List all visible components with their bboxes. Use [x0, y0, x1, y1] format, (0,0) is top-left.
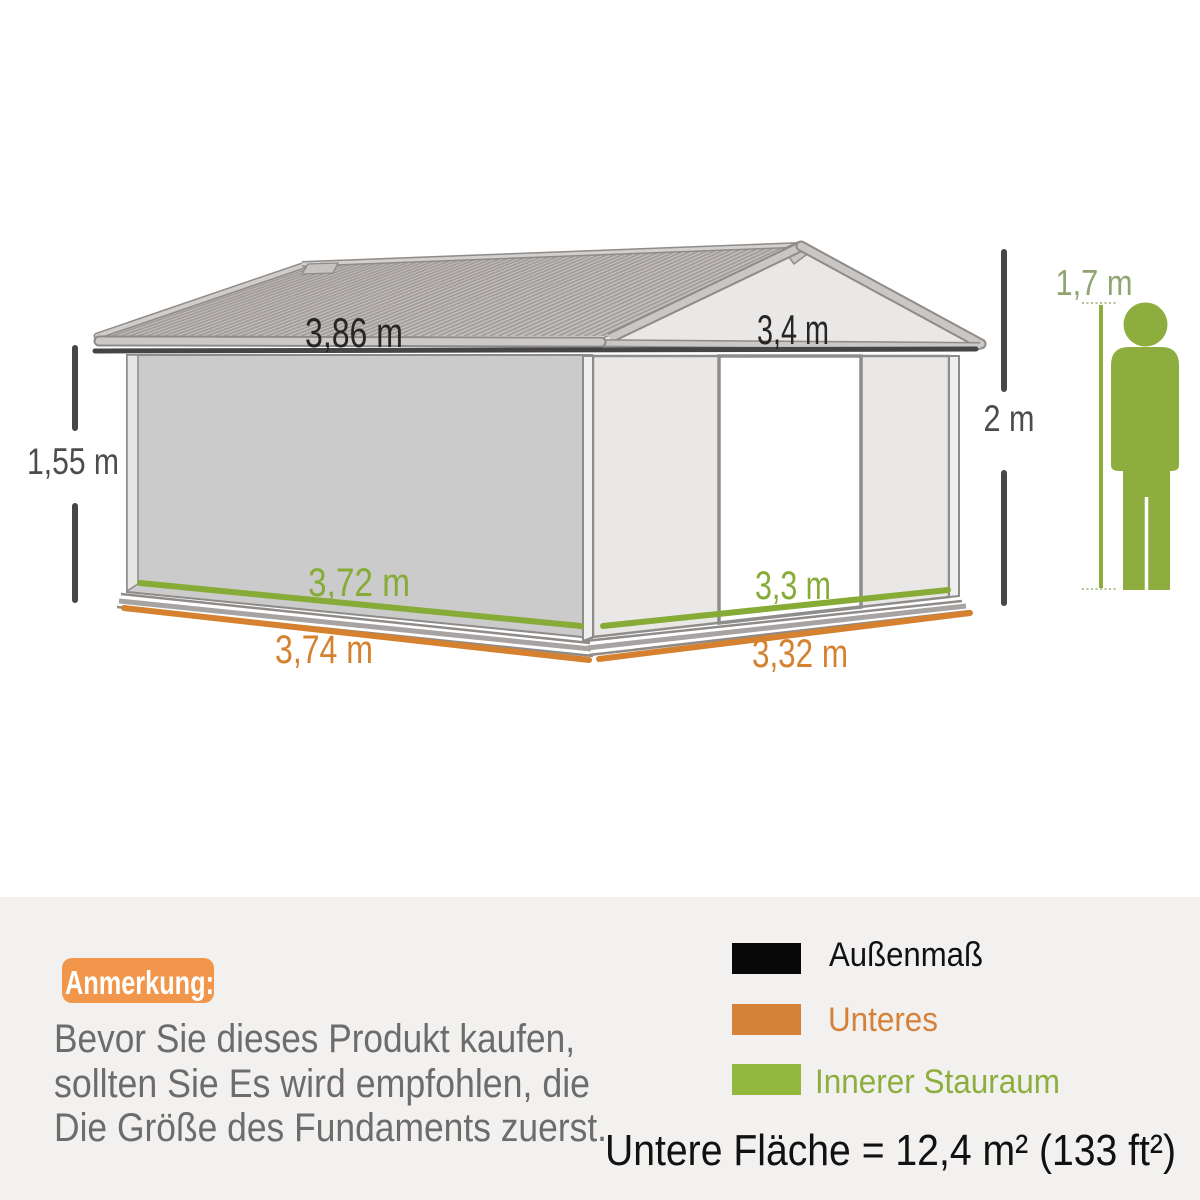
svg-text:sollten Sie Es wird empfohlen,: sollten Sie Es wird empfohlen, die: [54, 1062, 590, 1106]
svg-text:3,72 m: 3,72 m: [308, 561, 410, 605]
svg-text:3,3 m: 3,3 m: [755, 564, 831, 608]
svg-text:2 m: 2 m: [984, 398, 1035, 439]
svg-text:3,32 m: 3,32 m: [752, 632, 848, 676]
svg-text:Bevor Sie dieses Produkt kaufe: Bevor Sie dieses Produkt kaufen,: [54, 1017, 575, 1061]
svg-text:Anmerkung:: Anmerkung:: [65, 964, 214, 1001]
svg-text:3,4 m: 3,4 m: [757, 306, 829, 353]
svg-text:Untere Fläche = 12,4 m² (133 f: Untere Fläche = 12,4 m² (133 ft²): [605, 1126, 1176, 1175]
svg-text:Außenmaß: Außenmaß: [829, 936, 983, 974]
svg-text:Unteres: Unteres: [828, 1001, 938, 1039]
svg-text:3,86 m: 3,86 m: [305, 309, 403, 356]
svg-text:Die Größe des Fundaments zuers: Die Größe des Fundaments zuerst.: [54, 1106, 607, 1150]
svg-text:1,7 m: 1,7 m: [1056, 262, 1133, 303]
svg-text:Innerer Stauraum: Innerer Stauraum: [815, 1063, 1060, 1101]
svg-text:1,55 m: 1,55 m: [27, 441, 119, 482]
svg-text:3,74 m: 3,74 m: [275, 628, 373, 672]
